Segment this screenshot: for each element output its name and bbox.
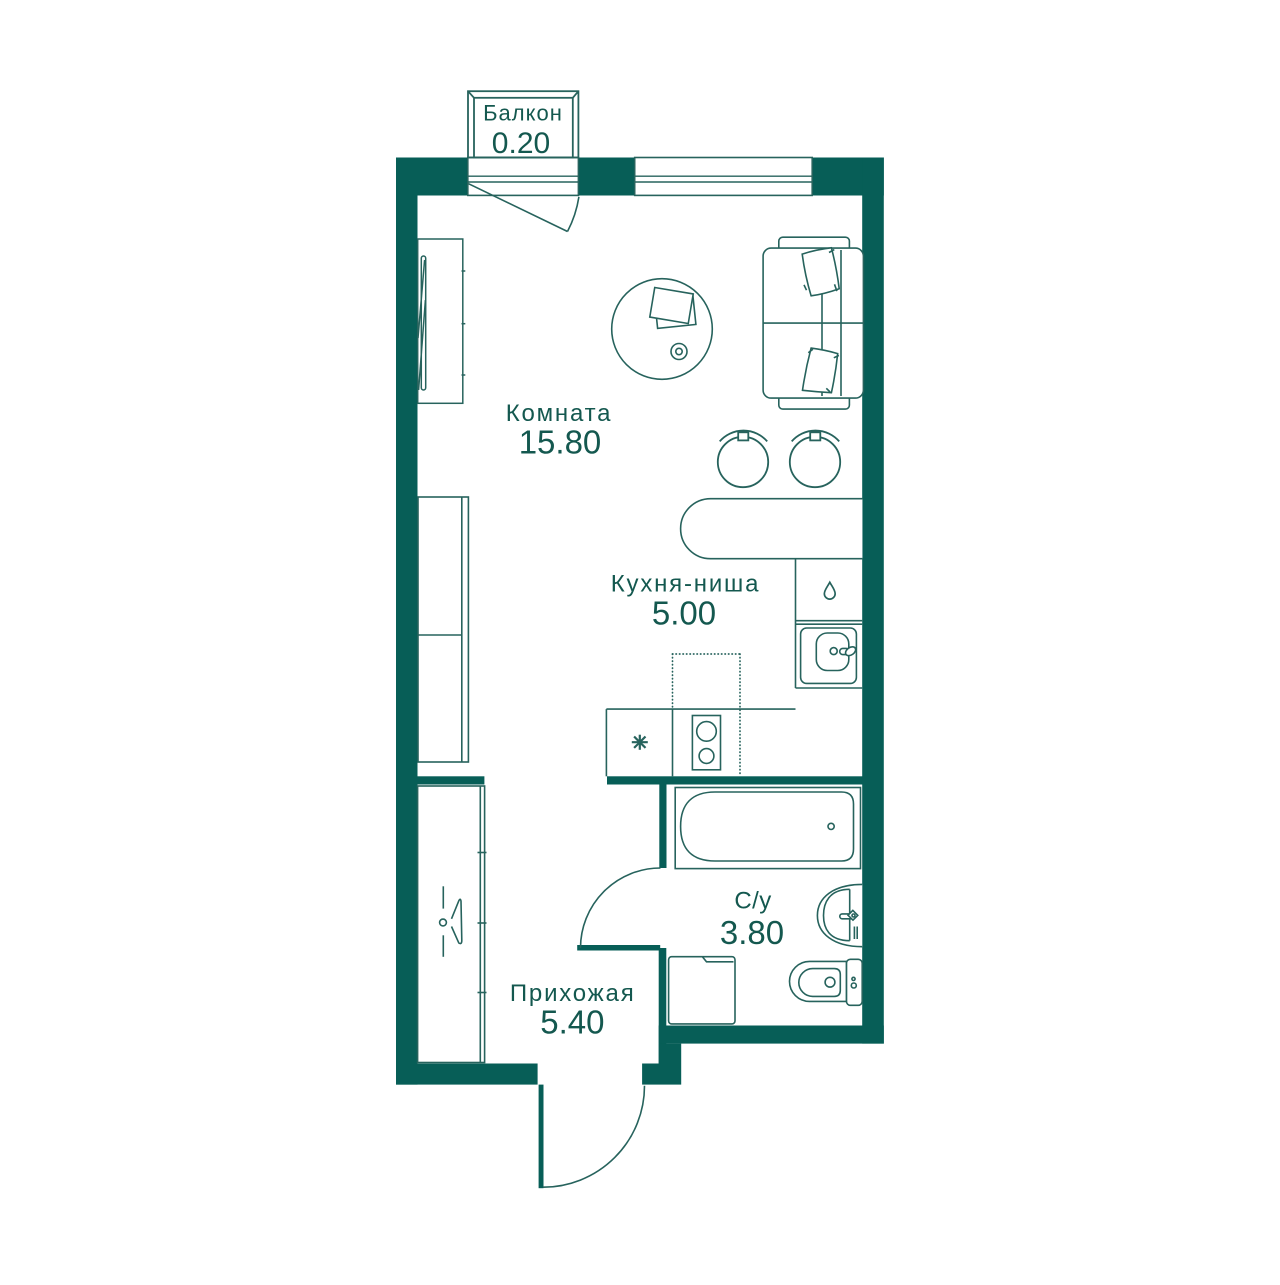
svg-text:0.20: 0.20 [492,127,550,160]
svg-text:5.00: 5.00 [652,594,716,631]
svg-text:3.80: 3.80 [720,914,784,951]
svg-text:15.80: 15.80 [519,424,602,461]
svg-text:5.40: 5.40 [540,1004,604,1041]
svg-text:Балкон: Балкон [483,101,563,126]
svg-text:С/у: С/у [734,887,771,914]
